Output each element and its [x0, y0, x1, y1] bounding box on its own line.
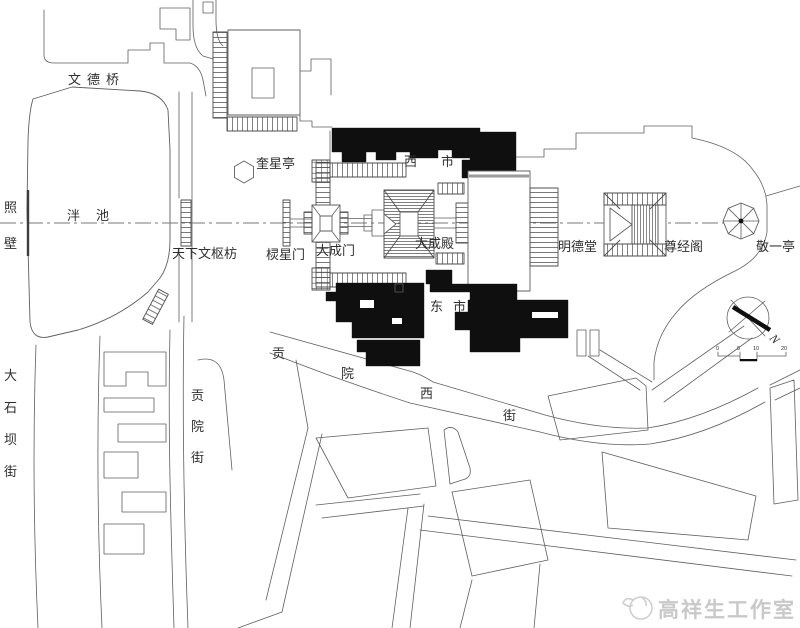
label-jingyi-ting: 敬一亭	[756, 239, 795, 254]
north-arcade-building	[213, 30, 300, 131]
bottom-right-blocks	[420, 326, 798, 576]
bottom-center-streets	[238, 360, 548, 628]
compass-north-label: N	[766, 331, 783, 348]
scale-tick-10: 10	[753, 346, 759, 352]
scale-bar: 0 5 10 20	[716, 346, 787, 361]
label-dashiba-jie: 大石坝街	[4, 368, 17, 479]
kuixing-pavilion	[235, 161, 254, 183]
label-gongyuan-xijie-char2: 院	[341, 366, 354, 381]
label-gongyuan-xijie-char1: 贡	[272, 346, 285, 361]
studio-logo-icon	[630, 597, 652, 619]
compass-rose: N	[727, 297, 783, 347]
watermark-studio-name: 高祥生工作室	[658, 598, 796, 622]
label-zhaobi: 照壁	[4, 200, 17, 251]
label-kuixing-ting: 奎星亭	[256, 156, 295, 171]
scale-tick-20: 20	[781, 346, 787, 352]
label-gongyuan-xijie-char3: 西	[420, 386, 433, 401]
label-lingxing-men: 棂星门	[266, 247, 305, 262]
gongyuan-xijie-street	[270, 332, 800, 445]
dongshi-market-buildings	[326, 270, 568, 366]
label-gongyuan-xijie-char4: 街	[503, 408, 516, 423]
label-dacheng-men: 大成门	[316, 243, 355, 258]
scale-tick-0: 0	[716, 346, 719, 352]
zunjingge-pavilion	[604, 193, 666, 256]
label-gongyuan-jie: 贡院街	[191, 388, 204, 465]
tianxia-wenshu-archway	[181, 200, 191, 246]
label-panchi: 泮池	[67, 208, 125, 223]
label-mingde-tang: 明德堂	[558, 239, 597, 254]
mingdetang-hall	[468, 171, 558, 291]
label-tianxia-wenshu-fang: 天下文枢枋	[172, 246, 237, 261]
dachengdian-hall	[364, 183, 468, 264]
site-plan-page: N 0 5 10 20 文德桥 照壁 泮池 天下文枢枋 奎星亭 棂星门 大成门 …	[0, 0, 800, 628]
studio-watermark: 高祥生工作室	[623, 597, 796, 622]
dachengmen-gate	[304, 205, 372, 242]
label-dong-shi: 东市	[430, 299, 476, 314]
label-dacheng-dian: 大成殿	[415, 236, 454, 251]
pond-steps	[143, 289, 169, 324]
jingyiting-pavilion	[723, 203, 759, 239]
label-zunjing-ge: 尊经阁	[664, 239, 703, 254]
site-plan-canvas: N 0 5 10 20 文德桥 照壁 泮池 天下文枢枋 奎星亭 棂星门 大成门 …	[0, 0, 800, 628]
scale-tick-5: 5	[737, 346, 740, 352]
label-wende-bridge: 文德桥	[68, 72, 125, 87]
left-streets-and-blocks	[34, 316, 232, 628]
label-xi-shi: 西市	[404, 154, 478, 169]
